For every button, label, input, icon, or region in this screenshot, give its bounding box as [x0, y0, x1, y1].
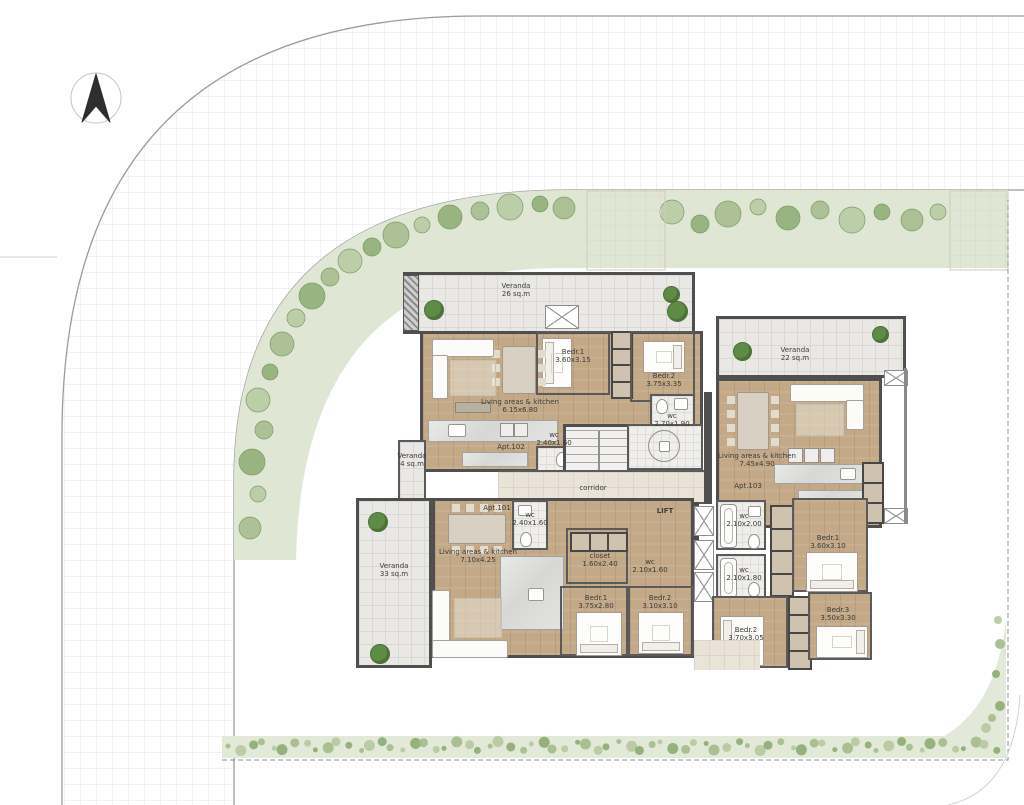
apt103-wc1-label: wc 2.10x2.00	[724, 512, 764, 529]
bush-icon	[649, 741, 656, 748]
room-name: Bedr.1	[585, 594, 607, 602]
bush-icon	[764, 741, 773, 750]
tree-icon	[776, 206, 800, 230]
apt103-living-label: Living areas & kitchen 7.45x4.90	[707, 452, 807, 469]
apt103-bed1-label: Bedr.1 3.60x3.10	[804, 534, 852, 551]
bush-icon	[736, 738, 743, 745]
tree-icon	[338, 249, 362, 273]
toilet-icon	[748, 582, 760, 597]
tree-icon	[255, 421, 273, 439]
room-name: Bedr.1	[817, 534, 839, 542]
bush-icon	[539, 737, 550, 748]
bush-icon	[704, 741, 709, 746]
veranda-name: Veranda	[502, 282, 531, 290]
bush-icon	[883, 740, 894, 751]
apt102-wc1-label: wc 2.70x1.90	[650, 412, 694, 429]
bush-icon	[451, 736, 462, 747]
planter-icon	[545, 305, 579, 329]
apt103-veranda-label: Veranda 22 sq.m	[763, 346, 827, 363]
north-arrow-icon	[71, 73, 121, 123]
apt102-small-veranda-label: Veranda 4 sq.m	[394, 452, 430, 469]
apt103-id-label: Apt.103	[728, 482, 768, 490]
bush-icon	[980, 740, 989, 749]
room-dims: 6.15x6.80	[502, 406, 537, 414]
site-plan-canvas: Veranda 26 sq.m Bedr.1 3.60x3.15 Bedr.2 …	[0, 0, 1024, 805]
room-dims: 3.75x2.80	[578, 602, 613, 610]
bush-icon	[832, 747, 837, 752]
bush-icon	[304, 740, 311, 747]
room-dims: 3.10x3.10	[642, 602, 677, 610]
bush-icon	[709, 745, 720, 756]
bed-icon	[816, 626, 868, 658]
apt102-bed2-label: Bedr.2 3.75x3.35	[640, 372, 688, 389]
bush-icon	[851, 737, 860, 746]
sink-icon	[674, 398, 688, 410]
room-name: wc	[549, 431, 559, 439]
bush-icon	[235, 745, 246, 756]
apartment-id: Apt.101	[483, 504, 511, 512]
entry-walkway	[694, 640, 760, 670]
room-name: Bedr.2	[653, 372, 675, 380]
room-dims: 1.60x2.40	[582, 560, 617, 568]
bush-icon	[493, 736, 504, 747]
bush-icon	[364, 740, 375, 751]
apt103-bed3-label: Bedr.3 3.50x3.30	[814, 606, 862, 623]
bush-icon	[690, 739, 697, 746]
wheelchair-icon	[648, 430, 680, 462]
veranda-area: 22 sq.m	[781, 354, 809, 362]
bush-icon	[616, 739, 621, 744]
tree-icon	[262, 364, 278, 380]
lift-text: LIFT	[657, 507, 674, 515]
storage-cell	[864, 464, 882, 482]
tree-icon	[438, 205, 462, 229]
bush-icon	[938, 738, 947, 747]
bush-icon	[474, 747, 481, 754]
tree-icon	[250, 486, 266, 502]
bush-icon	[345, 742, 352, 749]
bush-icon	[993, 747, 1000, 754]
tree-icon	[667, 301, 688, 322]
sofa-icon	[432, 590, 450, 644]
bush-icon	[277, 744, 288, 755]
storage-cell	[772, 552, 792, 573]
apt101-closet-label: closet 1.60x2.40	[576, 552, 624, 569]
bush-icon	[925, 738, 936, 749]
bush-icon	[442, 746, 447, 751]
bed-icon	[806, 552, 858, 592]
tree-icon	[733, 342, 752, 361]
bush-icon	[842, 743, 853, 754]
room-dims: 3.60x3.15	[555, 356, 590, 364]
apt101-bed1-label: Bedr.1 3.75x2.80	[572, 594, 620, 611]
bush-icon	[290, 738, 299, 747]
room-dims: 2.40x1.60	[512, 519, 547, 527]
veranda-area: 26 sq.m	[502, 290, 530, 298]
bush-icon	[488, 744, 493, 749]
storage-cell	[790, 598, 810, 614]
room-name: Bedr.3	[827, 606, 849, 614]
bush-icon	[995, 701, 1005, 711]
room-dims: 2.40x1.60	[536, 439, 571, 447]
tree-icon	[368, 512, 388, 532]
sofa-icon	[432, 355, 448, 399]
room-name: wc	[739, 512, 749, 520]
tree-icon	[750, 199, 766, 215]
toilet-icon	[748, 534, 760, 549]
bed-icon	[638, 612, 684, 654]
apt102-small-veranda-floor	[398, 440, 426, 502]
apt101-wc2-label: wc 2.10x1.60	[630, 558, 670, 575]
bush-icon	[874, 748, 879, 753]
bush-icon	[810, 739, 819, 748]
apt102-wc2-label: wc 2.40x1.60	[532, 431, 576, 448]
room-dims: 2.10x1.80	[726, 574, 761, 582]
apt103-wc2-label: wc 2.10x1.80	[724, 566, 764, 583]
apt102-veranda-label: Veranda 26 sq.m	[478, 282, 554, 299]
bush-icon	[332, 737, 341, 746]
room-name: wc	[667, 412, 677, 420]
tree-icon	[715, 201, 741, 227]
storage-cell	[591, 534, 608, 550]
bush-icon	[988, 714, 996, 722]
bush-icon	[681, 745, 690, 754]
lift-label: LIFT	[645, 507, 685, 515]
apartment-id: Apt.103	[734, 482, 762, 490]
bush-icon	[400, 747, 405, 752]
room-name: Bedr.1	[562, 348, 584, 356]
bush-icon	[387, 744, 394, 751]
wardrobe-storage	[570, 532, 628, 552]
sofa-icon	[432, 640, 508, 658]
bush-icon	[594, 746, 603, 755]
veranda-name: Veranda	[781, 346, 810, 354]
bush-icon	[658, 739, 663, 744]
tree-icon	[811, 201, 829, 219]
tree-icon	[930, 204, 946, 220]
tree-icon	[532, 196, 548, 212]
corridor-label: corridor	[566, 484, 620, 492]
apt102-id-label: Apt.102	[492, 443, 530, 451]
bush-icon	[906, 744, 913, 751]
room-name: Bedr.2	[735, 626, 757, 634]
tree-icon	[370, 644, 390, 664]
room-name: Living areas & kitchen	[439, 548, 517, 556]
bush-icon	[796, 744, 807, 755]
bush-icon	[981, 723, 991, 733]
bush-icon	[575, 740, 580, 745]
duct-shaft	[694, 540, 714, 570]
corridor-text: corridor	[579, 484, 606, 492]
storage-cell	[772, 575, 792, 596]
apt101-id-label: Apt.101	[478, 504, 516, 512]
tree-icon	[553, 197, 575, 219]
room-name: Living areas & kitchen	[718, 452, 796, 460]
bush-icon	[603, 743, 610, 750]
storage-cell	[772, 507, 792, 528]
room-dims: 3.50x3.30	[820, 614, 855, 622]
rug	[454, 598, 502, 638]
bush-icon	[548, 745, 557, 754]
storage-cell	[572, 534, 589, 550]
rug	[450, 360, 496, 396]
apt101-veranda-label: Veranda 33 sq.m	[368, 562, 420, 579]
room-name: wc	[525, 511, 535, 519]
cooktop-icon	[500, 423, 514, 437]
bush-icon	[745, 743, 750, 748]
bush-icon	[992, 670, 1000, 678]
tree-icon	[497, 194, 523, 220]
apt102-living-label: Living areas & kitchen 6.15x6.80	[470, 398, 570, 415]
room-dims: 3.75x3.35	[646, 380, 681, 388]
bush-icon	[226, 744, 231, 749]
apartment-id: Apt.102	[497, 443, 525, 451]
apt101-bed2-label: Bedr.2 3.10x3.10	[636, 594, 684, 611]
room-dims: 7.10x4.25	[460, 556, 495, 564]
apt101-living-label: Living areas & kitchen 7.10x4.25	[428, 548, 528, 565]
room-dims: 2.10x2.00	[726, 520, 761, 528]
bush-icon	[791, 745, 796, 750]
tree-icon	[299, 283, 325, 309]
tree-icon	[471, 202, 489, 220]
bush-icon	[313, 747, 318, 752]
room-dims: 3.60x3.10	[810, 542, 845, 550]
bush-icon	[994, 616, 1002, 624]
room-name: closet	[590, 552, 611, 560]
bush-icon	[819, 739, 826, 746]
bush-icon	[995, 639, 1005, 649]
room-name: wc	[739, 566, 749, 574]
walkway-patch	[950, 191, 1008, 270]
walkway-patch	[587, 191, 665, 270]
bush-icon	[961, 746, 966, 751]
wardrobe-storage	[770, 505, 794, 597]
room-dims: 7.45x4.90	[739, 460, 774, 468]
tree-icon	[901, 209, 923, 231]
bush-icon	[529, 741, 534, 746]
tree-icon	[321, 268, 339, 286]
bush-icon	[272, 746, 277, 751]
bush-icon	[897, 737, 906, 746]
tree-icon	[383, 222, 409, 248]
bush-icon	[952, 746, 959, 753]
bush-icon	[722, 743, 731, 752]
oven-icon	[514, 423, 528, 437]
tree-icon	[691, 215, 709, 233]
kitchen-island	[462, 452, 528, 467]
bush-icon	[865, 741, 872, 748]
veranda-area: 4 sq.m	[400, 460, 424, 468]
dining-table-icon	[448, 514, 506, 544]
storage-cell	[772, 530, 792, 551]
storage-cell	[613, 366, 631, 381]
tree-icon	[239, 449, 265, 475]
wall	[704, 392, 712, 504]
tree-icon	[287, 309, 305, 327]
tree-icon	[874, 204, 890, 220]
bush-icon	[561, 745, 568, 752]
bed-icon	[643, 341, 685, 373]
veranda-name: Veranda	[398, 452, 427, 460]
sink-icon	[840, 468, 856, 480]
storage-cell	[790, 616, 810, 632]
storage-cell	[613, 333, 631, 348]
bush-icon	[258, 738, 265, 745]
storage-cell	[790, 634, 810, 650]
tree-icon	[414, 217, 430, 233]
tree-icon	[239, 517, 261, 539]
parapet-wall	[904, 368, 907, 524]
room-name: Living areas & kitchen	[481, 398, 559, 406]
storage-cell	[613, 350, 631, 365]
sofa-icon	[846, 400, 864, 430]
sink-icon	[448, 424, 466, 437]
bush-icon	[667, 743, 678, 754]
bush-icon	[465, 740, 474, 749]
bush-icon	[920, 748, 925, 753]
duct-shaft	[694, 572, 714, 602]
room-dims: 2.10x1.60	[632, 566, 667, 574]
tree-icon	[246, 388, 270, 412]
dining-table-icon	[737, 392, 769, 450]
rug	[796, 404, 844, 436]
bush-icon	[378, 737, 387, 746]
cooktop-icon	[820, 448, 835, 463]
bush-icon	[433, 746, 440, 753]
duct-shaft	[694, 506, 714, 536]
bush-icon	[635, 746, 644, 755]
tree-icon	[839, 207, 865, 233]
veranda-name: Veranda	[380, 562, 409, 570]
bush-icon	[580, 739, 591, 750]
bed-icon	[576, 612, 622, 656]
bush-icon	[777, 738, 784, 745]
storage-cell	[609, 534, 626, 550]
tree-icon	[424, 300, 444, 320]
room-dims: 3.70x3.05	[728, 634, 763, 642]
apt101-wc1-label: wc 2.40x1.60	[510, 511, 550, 528]
sink-icon	[528, 588, 544, 601]
room-dims: 2.70x1.90	[654, 420, 689, 428]
tree-icon	[363, 238, 381, 256]
bush-icon	[520, 747, 527, 754]
bush-icon	[419, 738, 428, 747]
tree-icon	[270, 332, 294, 356]
dining-table-icon	[502, 346, 536, 394]
storage-cell	[790, 652, 810, 668]
room-name: wc	[645, 558, 655, 566]
bush-icon	[249, 740, 258, 749]
storage-cell	[613, 383, 631, 398]
toilet-icon	[520, 532, 532, 547]
bush-icon	[323, 742, 334, 753]
bush-icon	[506, 742, 515, 751]
tree-icon	[872, 326, 889, 343]
bush-icon	[359, 748, 364, 753]
wall-pier	[403, 275, 419, 331]
room-name: Bedr.2	[649, 594, 671, 602]
veranda-area: 33 sq.m	[380, 570, 408, 578]
apt103-bed2-label: Bedr.2 3.70x3.05	[722, 626, 770, 643]
apt102-bed1-label: Bedr.1 3.60x3.15	[549, 348, 597, 365]
